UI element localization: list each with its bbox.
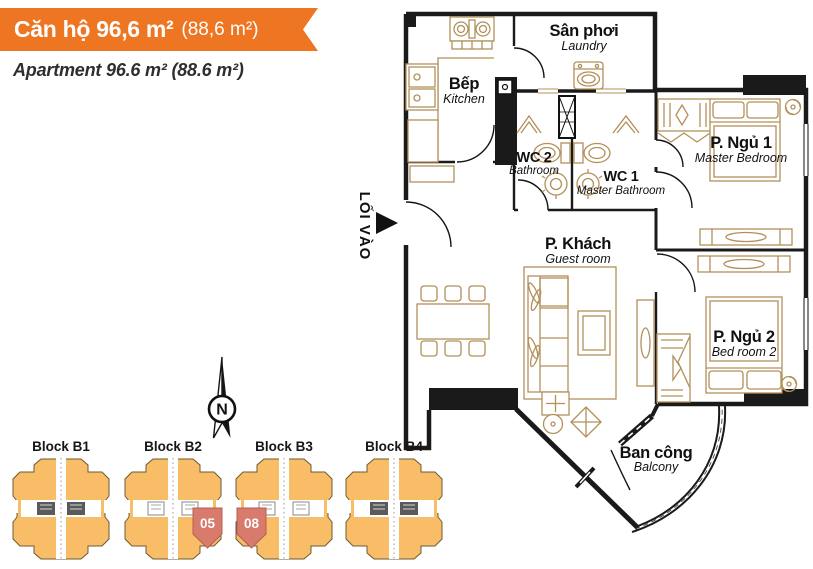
room-label-master-en: Master Bedroom: [695, 151, 787, 165]
bedroom2-door-arc: [657, 254, 695, 292]
wall-block: [743, 75, 806, 95]
laundry-furniture: [574, 62, 603, 89]
kitchen-door-arc: [457, 125, 494, 162]
cabinet: [410, 166, 454, 182]
compass-north-label: N: [216, 402, 228, 419]
room-label-wc2-en: Bathroom: [509, 165, 559, 177]
toilet-icon: [574, 143, 610, 163]
room-label-wc1-en: Master Bathroom: [577, 185, 666, 197]
block-b4-footprint: [344, 457, 444, 559]
dining-table: [417, 286, 489, 356]
compass: N: [209, 357, 235, 438]
washing-machine-icon: [574, 62, 603, 89]
sofa-icon: [526, 276, 568, 392]
counter-line: [438, 58, 494, 162]
plant-square-icon: [571, 407, 601, 437]
entrance-label: LỐI VÀO: [356, 192, 374, 261]
laundry-door-arc: [514, 48, 544, 78]
entrance-door-arc: [406, 202, 451, 247]
room-label-bedroom2-en: Bed room 2: [712, 345, 777, 359]
kitchen-sink-icon: [406, 64, 438, 110]
stove-icon: [450, 17, 494, 49]
plan-canvas: Sân phơi Laundry Bếp Kitchen WC 2 Bathro…: [0, 0, 813, 569]
dresser-icon: [698, 256, 790, 272]
wall-block: [429, 388, 518, 410]
room-label-living-vi: P. Khách: [545, 235, 611, 253]
side-table: [542, 392, 569, 415]
living-room-furniture: [417, 267, 654, 437]
room-label-living-en: Guest room: [545, 252, 610, 266]
block-b3-label: Block B3: [255, 439, 313, 454]
room-label-kitchen-vi: Bếp: [449, 75, 479, 93]
block-b1-label: Block B1: [32, 439, 90, 454]
entrance-arrow-icon: [376, 212, 398, 234]
room-label-balcony-en: Balcony: [634, 460, 679, 474]
ceiling-fan-icon: [786, 100, 801, 115]
block-b4-label: Block B4: [365, 439, 423, 454]
shower-icon: [613, 116, 639, 133]
room-label-wc1-vi: WC 1: [603, 169, 638, 185]
wc1-door-arc: [656, 140, 683, 167]
room-label-bedroom2-vi: P. Ngủ 2: [713, 328, 775, 346]
wardrobe-icon: [657, 334, 690, 402]
wardrobe-icon: [658, 99, 712, 142]
dresser-icon: [700, 229, 792, 245]
service-shaft: [559, 96, 575, 138]
room-label-master-vi: P. Ngủ 1: [710, 134, 772, 152]
shower-icon: [517, 116, 541, 133]
sliding-door: [620, 404, 658, 444]
unit-05-label: 05: [200, 516, 216, 531]
plant-pot-icon: [544, 415, 563, 434]
room-label-wc2-vi: WC 2: [516, 150, 551, 166]
entrance-marker: LỐI VÀO: [356, 192, 398, 261]
block-b1-footprint: [11, 457, 111, 559]
room-label-kitchen-en: Kitchen: [443, 92, 485, 106]
tv-cabinet: [637, 300, 654, 386]
floorplan-page: Căn hộ 96,6 m² (88,6 m²) Apartment 96.6 …: [0, 0, 813, 569]
master-bedroom-furniture: [658, 99, 801, 245]
site-map: Block B1 Block B2 Block B3 Block B4: [11, 439, 444, 559]
cabinet: [408, 120, 438, 162]
room-label-laundry-en: Laundry: [561, 39, 607, 53]
wc2-door-arc: [518, 180, 548, 210]
coffee-table: [578, 311, 610, 355]
unit-08-label: 08: [244, 516, 260, 531]
wall-corner: [406, 16, 416, 27]
room-label-laundry-vi: Sân phơi: [550, 22, 619, 40]
block-b2-label: Block B2: [144, 439, 202, 454]
